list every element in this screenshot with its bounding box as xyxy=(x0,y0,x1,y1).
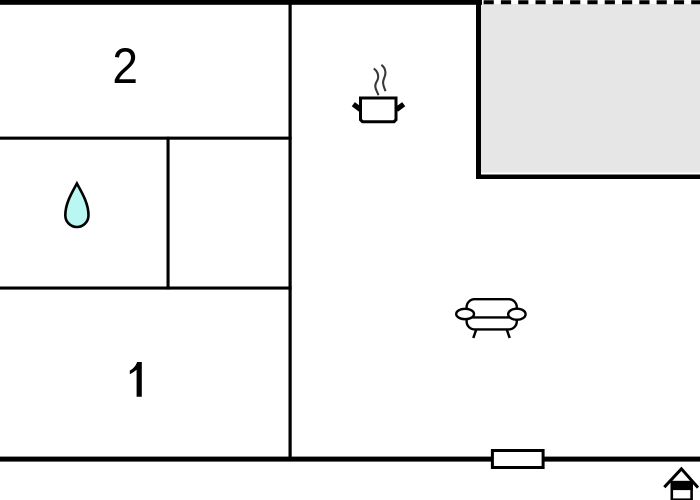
svg-text:2: 2 xyxy=(112,39,138,94)
